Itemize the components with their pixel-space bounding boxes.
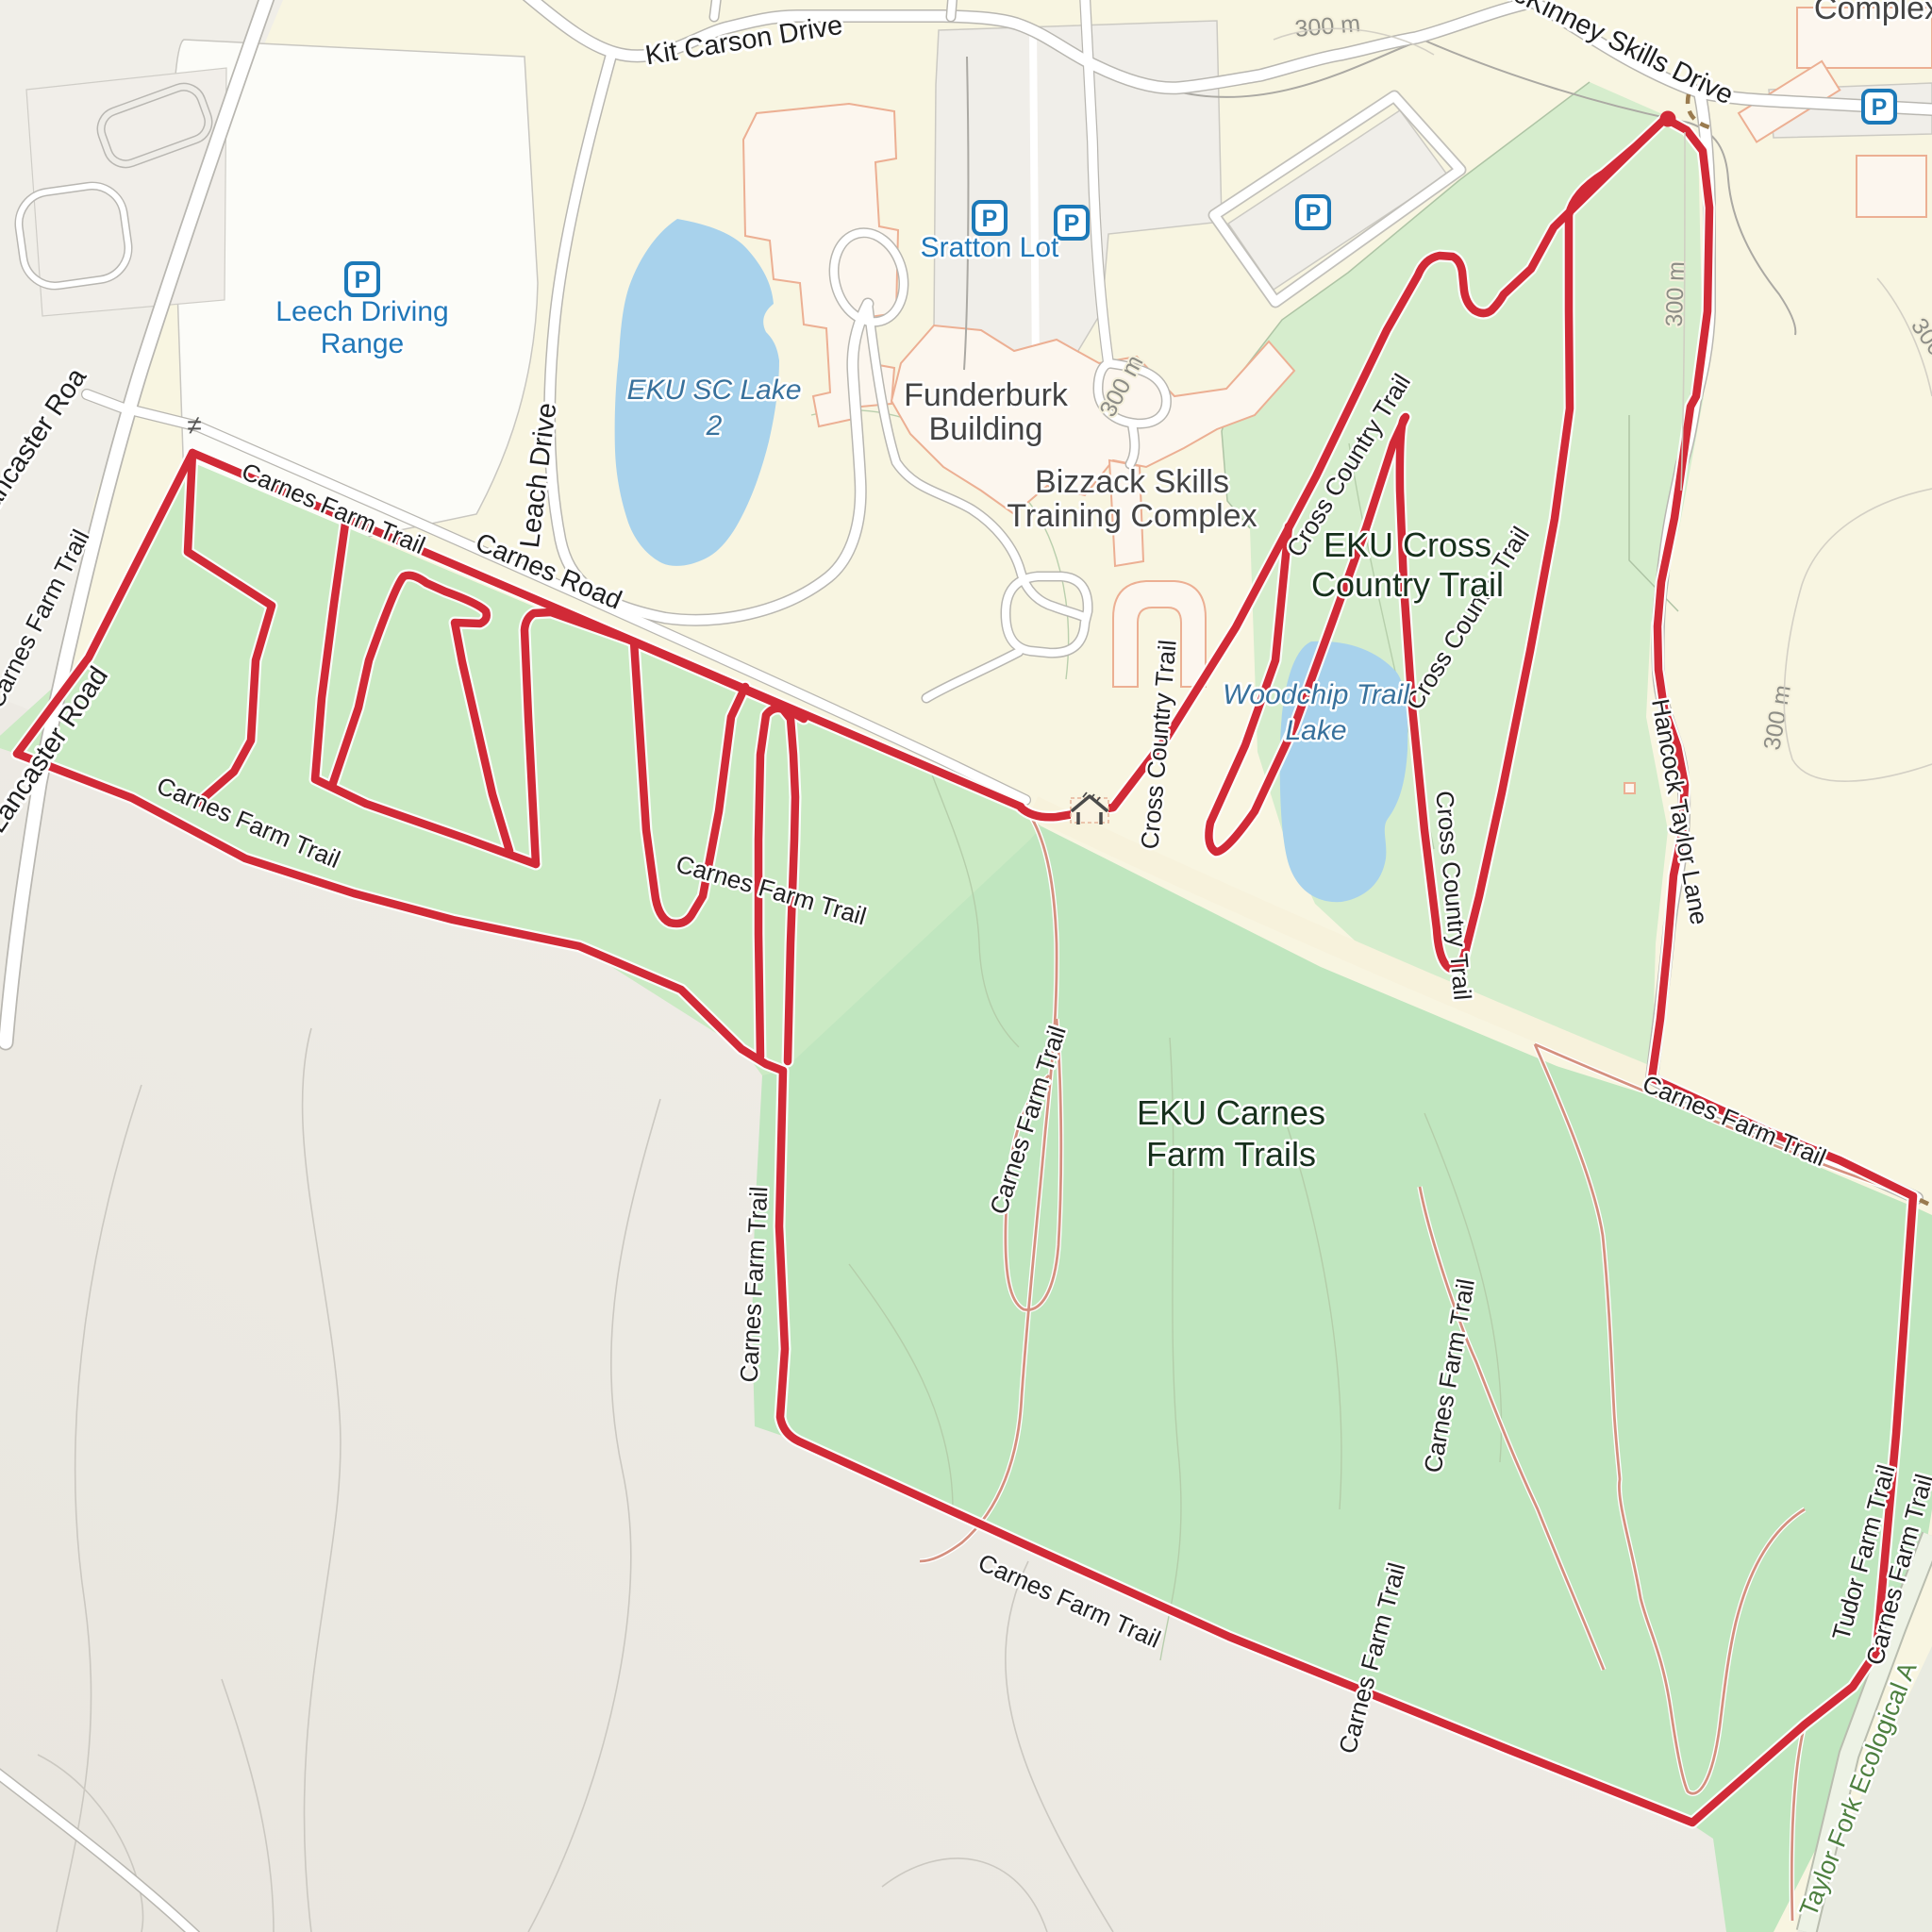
- svg-text:P: P: [1872, 94, 1888, 121]
- svg-text:P: P: [1306, 200, 1322, 226]
- svg-text:EKU Cross: EKU Cross: [1324, 525, 1491, 564]
- svg-text:Complex: Complex: [1814, 0, 1932, 26]
- svg-text:Bizzack Skills: Bizzack Skills: [1035, 464, 1229, 500]
- svg-text:EKU Carnes: EKU Carnes: [1137, 1093, 1325, 1132]
- svg-text:300 m: 300 m: [1661, 261, 1690, 327]
- svg-text:P: P: [1064, 210, 1080, 237]
- svg-text:Building: Building: [929, 411, 1043, 447]
- svg-text:EKU SC Lake: EKU SC Lake: [626, 375, 801, 406]
- svg-text:P: P: [355, 267, 371, 293]
- svg-text:Leech Driving: Leech Driving: [275, 296, 448, 327]
- svg-text:Sratton Lot: Sratton Lot: [921, 232, 1059, 263]
- svg-text:Lake: Lake: [1285, 715, 1346, 746]
- svg-text:Range: Range: [321, 328, 404, 359]
- svg-text:Funderburk: Funderburk: [904, 377, 1069, 413]
- svg-text:Country Trail: Country Trail: [1311, 565, 1504, 604]
- svg-text:Farm Trails: Farm Trails: [1146, 1135, 1316, 1174]
- svg-text:Training Complex: Training Complex: [1007, 498, 1257, 534]
- svg-text:≠: ≠: [187, 410, 201, 440]
- svg-text:Woodchip Trail: Woodchip Trail: [1223, 679, 1410, 710]
- svg-text:2: 2: [706, 410, 723, 441]
- svg-text:P: P: [982, 206, 998, 232]
